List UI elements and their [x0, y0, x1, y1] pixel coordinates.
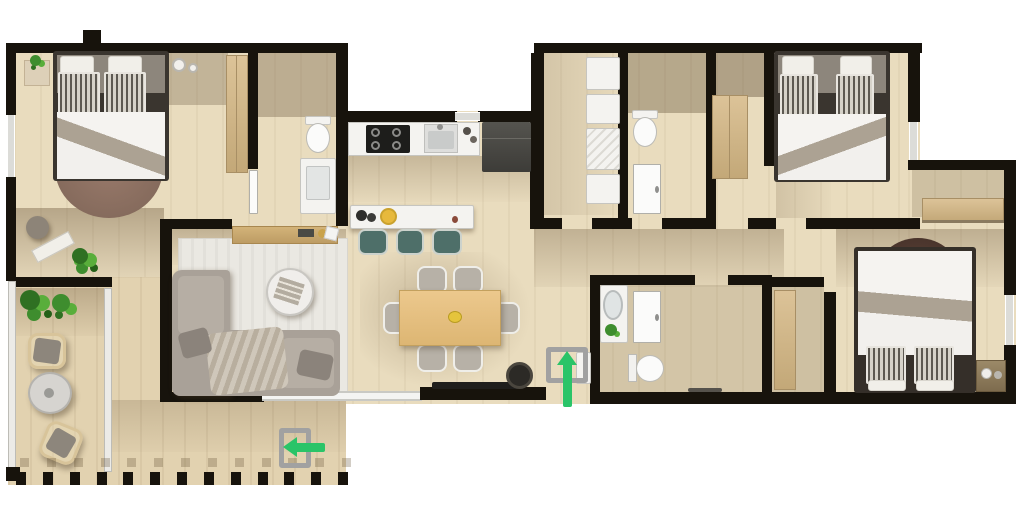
railing-post [177, 472, 187, 485]
bedroom3-closet [922, 198, 1004, 222]
yellow-plate [380, 208, 397, 225]
railing-post-shadow [47, 458, 56, 467]
wall [14, 277, 112, 287]
planter-pot [506, 362, 533, 389]
bar-stool[interactable] [396, 229, 424, 255]
bowl [356, 210, 367, 221]
railing-post [97, 472, 107, 485]
wall [772, 277, 824, 287]
pouf [26, 216, 49, 239]
railing-post [284, 472, 294, 485]
railing-post-shadow [154, 458, 163, 467]
door-handle [655, 186, 659, 193]
wall [336, 43, 348, 226]
toilet [306, 123, 330, 153]
striped-pillow [58, 72, 100, 114]
exterior-bottom [346, 404, 1024, 531]
potted-plant [52, 294, 70, 312]
bedroom1-duvet [57, 112, 165, 179]
wall-stub [83, 30, 101, 44]
potted-plant [20, 290, 40, 310]
railing-post-shadow [235, 458, 244, 467]
window [909, 122, 918, 162]
towel-rail [688, 388, 722, 392]
wall [764, 53, 774, 166]
railing-post [70, 472, 80, 485]
wall [478, 111, 536, 122]
railing-post [338, 472, 348, 485]
exterior-notch [345, 0, 534, 111]
wall [531, 53, 544, 219]
wall [345, 111, 457, 122]
nightstand-knob [981, 368, 992, 379]
wall [806, 218, 920, 229]
plant [605, 324, 617, 336]
railing-post-shadow [101, 458, 110, 467]
bar-stool[interactable] [358, 229, 388, 255]
dining-chair[interactable] [417, 344, 447, 372]
railing-post [311, 472, 321, 485]
burner [392, 128, 401, 137]
railing-post-shadow [208, 458, 217, 467]
wardrobe-divider [729, 95, 730, 179]
wall [592, 218, 632, 229]
pillow [868, 380, 906, 391]
nightstand-knob [994, 371, 1002, 379]
sink-basin [428, 131, 454, 149]
plant [30, 55, 41, 66]
railing-post-shadow [342, 458, 351, 467]
counter-item [463, 127, 471, 135]
wall [908, 43, 920, 122]
wall [590, 275, 600, 404]
dining-chair[interactable] [453, 344, 483, 372]
washer [586, 57, 620, 90]
wall [662, 218, 716, 229]
candle [188, 63, 198, 73]
wardrobe [712, 95, 748, 179]
railing-post-shadow [181, 458, 190, 467]
bedroom3-duvet [858, 251, 972, 355]
pillow [782, 56, 814, 76]
chair-cushion [32, 337, 61, 364]
railing-post-shadow [262, 458, 271, 467]
floor-plan [0, 0, 1024, 531]
railing-post [123, 472, 133, 485]
window [7, 115, 15, 177]
striped-pillow [914, 346, 954, 384]
closet-front [922, 220, 1004, 223]
sofa-cushion [178, 276, 224, 334]
arrow-up-stem [563, 363, 572, 407]
glass-partition [104, 288, 112, 472]
pillow [916, 380, 954, 391]
centerpiece-bowl [448, 311, 462, 323]
glass-wall [8, 281, 16, 471]
bowl [367, 213, 376, 222]
toilet [633, 117, 657, 147]
wall [748, 218, 776, 229]
wardrobe [226, 55, 248, 173]
railing-post [231, 472, 241, 485]
railing-post-shadow [20, 458, 29, 467]
wardrobe-divider [236, 55, 237, 173]
bedroom2-duvet [778, 114, 886, 180]
wall [824, 292, 836, 394]
door-handle [655, 314, 659, 321]
striped-pillow [780, 74, 818, 116]
hallway-closet [774, 290, 796, 390]
refrigerator-door-line [482, 138, 531, 139]
bar-stool[interactable] [432, 229, 462, 255]
sink-basin [306, 166, 330, 200]
cabinet [586, 174, 620, 204]
pillow [840, 56, 872, 76]
wall [6, 177, 16, 281]
window [1005, 295, 1014, 345]
candle [172, 58, 186, 72]
burner [371, 141, 380, 150]
cup [452, 216, 458, 223]
striped-pillow [866, 346, 906, 384]
table-detail [44, 388, 54, 398]
counter-item [470, 136, 477, 143]
window [455, 112, 480, 121]
striped-pillow [104, 72, 146, 114]
railing-post-shadow [74, 458, 83, 467]
burner [371, 128, 380, 137]
railing-post [43, 472, 53, 485]
sideboard-item [298, 229, 314, 237]
refrigerator [482, 122, 531, 172]
throw-blanket [205, 326, 289, 396]
railing-post-shadow [315, 458, 324, 467]
arrow-left-stem [295, 443, 325, 452]
wall [6, 43, 16, 115]
railing-post [204, 472, 214, 485]
striped-pillow [836, 74, 874, 116]
wall [160, 229, 172, 400]
toilet [636, 355, 664, 382]
wall [160, 219, 232, 229]
wall [1004, 170, 1016, 295]
wall [593, 275, 695, 285]
railing-post [16, 472, 26, 485]
door[interactable] [249, 170, 258, 214]
faucet [437, 124, 443, 130]
exterior-top-right [920, 0, 1024, 160]
wall [598, 392, 1016, 404]
dryer [586, 94, 620, 124]
railing-post-shadow [127, 458, 136, 467]
wall [534, 218, 562, 229]
potted-plant [72, 248, 88, 264]
burner [392, 141, 401, 150]
railing-post [150, 472, 160, 485]
wall [908, 160, 1016, 170]
wall [762, 275, 772, 404]
terrace-railing [16, 472, 348, 485]
wall [248, 43, 258, 169]
shelving-unit [586, 128, 620, 170]
railing-post [258, 472, 268, 485]
oval-sink [603, 290, 623, 320]
